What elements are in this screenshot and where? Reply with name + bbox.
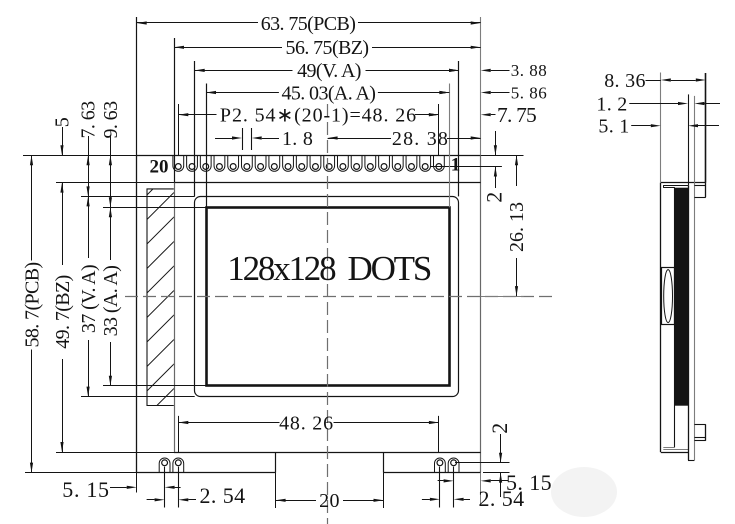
svg-text:7. 75: 7. 75 <box>497 103 536 127</box>
svg-text:8. 36: 8. 36 <box>604 70 646 92</box>
svg-text:1. 8: 1. 8 <box>282 128 313 150</box>
svg-text:20: 20 <box>319 490 340 512</box>
svg-text:5. 1: 5. 1 <box>598 116 629 138</box>
svg-text:5. 15: 5. 15 <box>62 477 110 502</box>
svg-text:48. 26: 48. 26 <box>279 412 334 434</box>
svg-text:128x128 DOTS: 128x128 DOTS <box>227 249 431 288</box>
svg-text:5: 5 <box>52 117 74 127</box>
svg-text:49. 7(BZ): 49. 7(BZ) <box>52 275 74 348</box>
svg-text:9. 63: 9. 63 <box>100 101 122 139</box>
svg-text:49(V. A): 49(V. A) <box>297 60 361 82</box>
svg-text:45. 03(A. A): 45. 03(A. A) <box>281 82 375 104</box>
svg-text:37 (V. A): 37 (V. A) <box>78 265 100 333</box>
svg-text:5. 86: 5. 86 <box>511 83 548 102</box>
svg-text:P2. 54∗(20-1)=48. 26: P2. 54∗(20-1)=48. 26 <box>220 105 417 127</box>
svg-text:26. 13: 26. 13 <box>506 202 528 252</box>
svg-text:2: 2 <box>482 192 507 202</box>
svg-text:58. 7(PCB): 58. 7(PCB) <box>21 262 43 347</box>
svg-text:56. 75(BZ): 56. 75(BZ) <box>286 37 369 59</box>
svg-text:63. 75(PCB): 63. 75(PCB) <box>261 13 356 35</box>
svg-text:2. 54: 2. 54 <box>200 483 246 508</box>
svg-text:2: 2 <box>487 423 512 433</box>
svg-text:33 (A. A): 33 (A. A) <box>100 266 122 337</box>
svg-text:3. 88: 3. 88 <box>511 61 548 80</box>
svg-text:1. 2: 1. 2 <box>596 93 627 115</box>
svg-text:28. 38: 28. 38 <box>392 128 449 150</box>
svg-text:20: 20 <box>150 156 169 177</box>
svg-text:7. 63: 7. 63 <box>78 101 100 139</box>
svg-text:2. 54: 2. 54 <box>479 486 525 511</box>
